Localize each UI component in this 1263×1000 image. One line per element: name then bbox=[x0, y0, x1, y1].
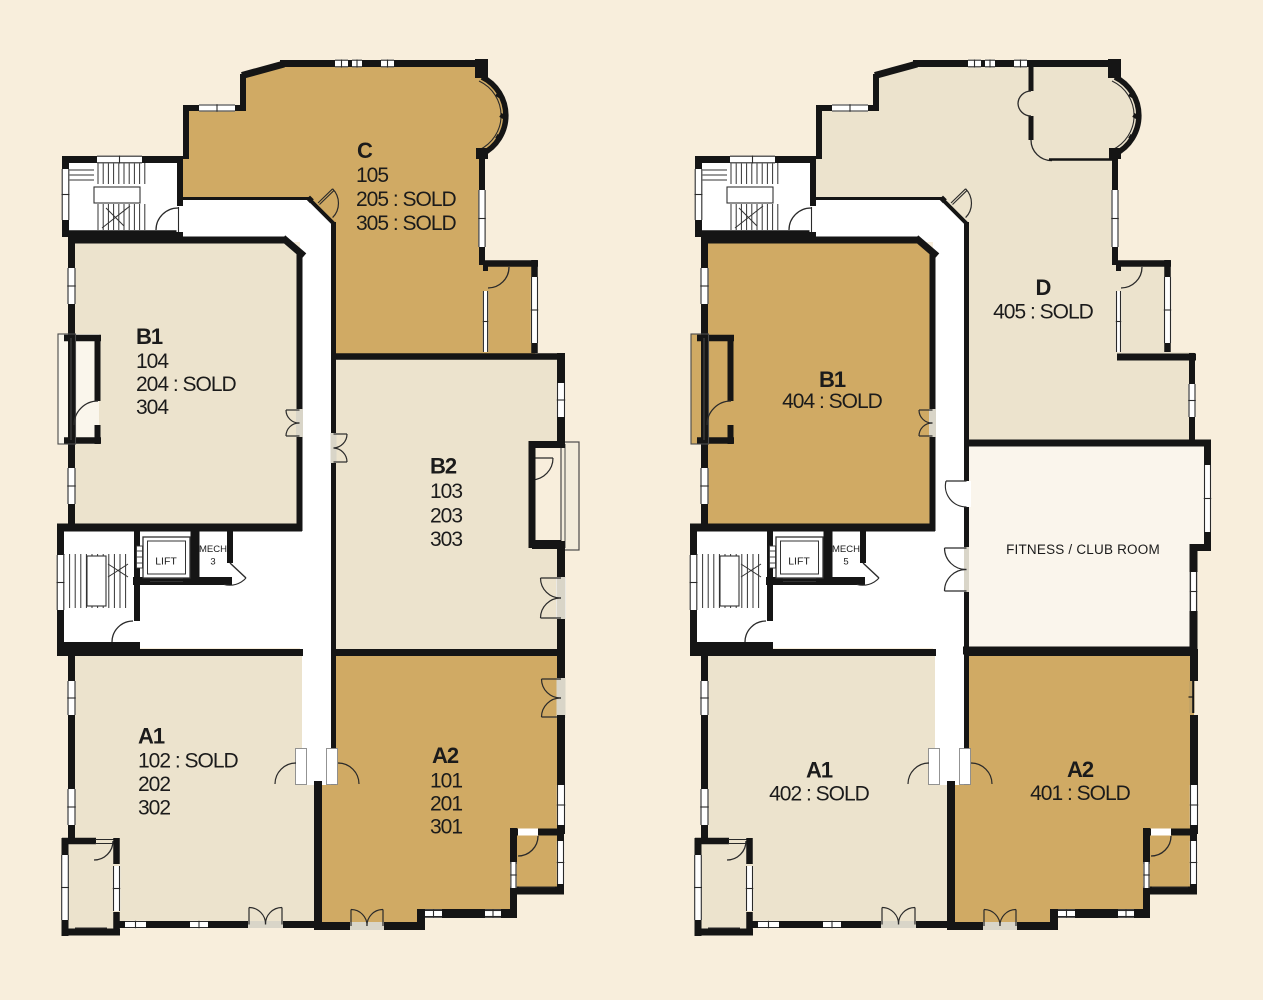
svg-text:201: 201 bbox=[430, 793, 462, 816]
svg-text:LIFT: LIFT bbox=[155, 556, 177, 568]
svg-text:202: 202 bbox=[138, 773, 170, 796]
svg-text:302: 302 bbox=[138, 797, 170, 820]
svg-text:5: 5 bbox=[843, 557, 848, 568]
svg-text:204 : SOLD: 204 : SOLD bbox=[136, 373, 237, 396]
svg-text:404 : SOLD: 404 : SOLD bbox=[782, 390, 883, 413]
svg-text:303: 303 bbox=[430, 528, 462, 551]
svg-text:B2: B2 bbox=[430, 454, 457, 479]
svg-text:A2: A2 bbox=[432, 743, 459, 768]
svg-text:304: 304 bbox=[136, 396, 169, 419]
svg-text:A1: A1 bbox=[806, 758, 833, 783]
svg-text:C: C bbox=[357, 138, 373, 163]
svg-text:LIFT: LIFT bbox=[788, 556, 810, 568]
svg-text:105: 105 bbox=[356, 164, 388, 187]
svg-text:A1: A1 bbox=[138, 724, 165, 749]
svg-text:203: 203 bbox=[430, 505, 462, 528]
svg-text:104: 104 bbox=[136, 350, 169, 373]
svg-text:305 : SOLD: 305 : SOLD bbox=[356, 212, 457, 235]
svg-text:B1: B1 bbox=[819, 367, 846, 392]
svg-text:A2: A2 bbox=[1067, 757, 1094, 782]
svg-text:FITNESS / CLUB ROOM: FITNESS / CLUB ROOM bbox=[1006, 542, 1160, 557]
svg-text:3: 3 bbox=[210, 557, 215, 568]
svg-text:MECH: MECH bbox=[832, 544, 860, 555]
svg-text:B1: B1 bbox=[136, 324, 163, 349]
svg-text:401 : SOLD: 401 : SOLD bbox=[1030, 782, 1131, 805]
svg-text:102 : SOLD: 102 : SOLD bbox=[138, 750, 239, 773]
svg-text:405 : SOLD: 405 : SOLD bbox=[993, 300, 1094, 323]
svg-text:101: 101 bbox=[430, 770, 462, 793]
svg-text:D: D bbox=[1036, 275, 1051, 300]
svg-text:MECH: MECH bbox=[199, 544, 227, 555]
svg-text:205 : SOLD: 205 : SOLD bbox=[356, 188, 457, 211]
svg-text:301: 301 bbox=[430, 816, 462, 839]
svg-text:103: 103 bbox=[430, 480, 462, 503]
svg-text:402 : SOLD: 402 : SOLD bbox=[769, 783, 870, 806]
